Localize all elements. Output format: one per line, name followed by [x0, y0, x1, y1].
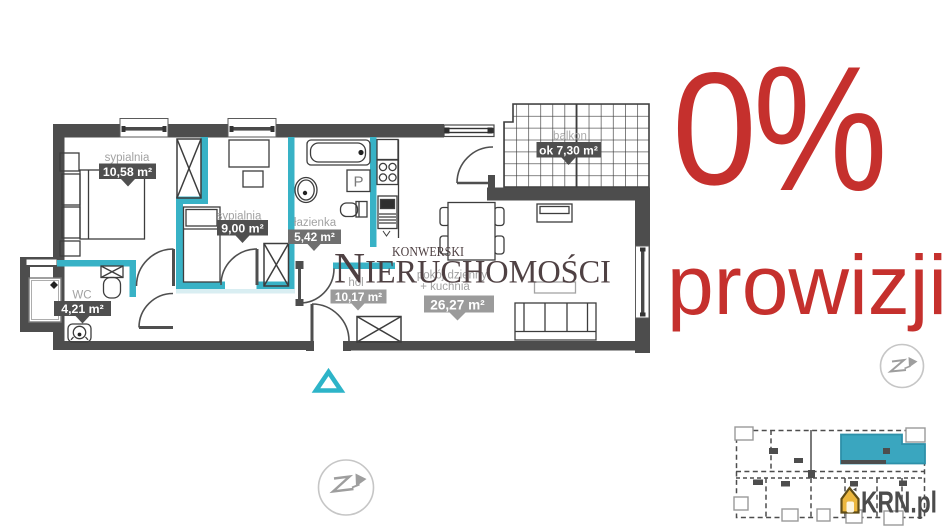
svg-text:0: 0	[672, 39, 757, 218]
svg-text:10,58 m²: 10,58 m²	[103, 165, 152, 179]
svg-text:ok 7,30 m²: ok 7,30 m²	[539, 143, 598, 157]
svg-text:5,42 m²: 5,42 m²	[294, 230, 335, 244]
svg-text:4,21 m²: 4,21 m²	[61, 302, 103, 316]
svg-text:26,27 m²: 26,27 m²	[430, 297, 485, 312]
svg-text:9,00 m²: 9,00 m²	[221, 221, 263, 235]
svg-text:%: %	[753, 29, 888, 228]
svg-text:prowizji: prowizji	[667, 238, 947, 332]
svg-text:balkon: balkon	[553, 131, 587, 143]
svg-text:łazienka: łazienka	[294, 217, 337, 229]
svg-text:KRN.pl: KRN.pl	[861, 486, 937, 520]
svg-text:P: P	[353, 173, 363, 190]
svg-text:WC: WC	[72, 290, 91, 302]
svg-text:sypialnia: sypialnia	[105, 152, 150, 164]
svg-text:NIERUCHOMOŚCI: NIERUCHOMOŚCI	[334, 246, 611, 293]
